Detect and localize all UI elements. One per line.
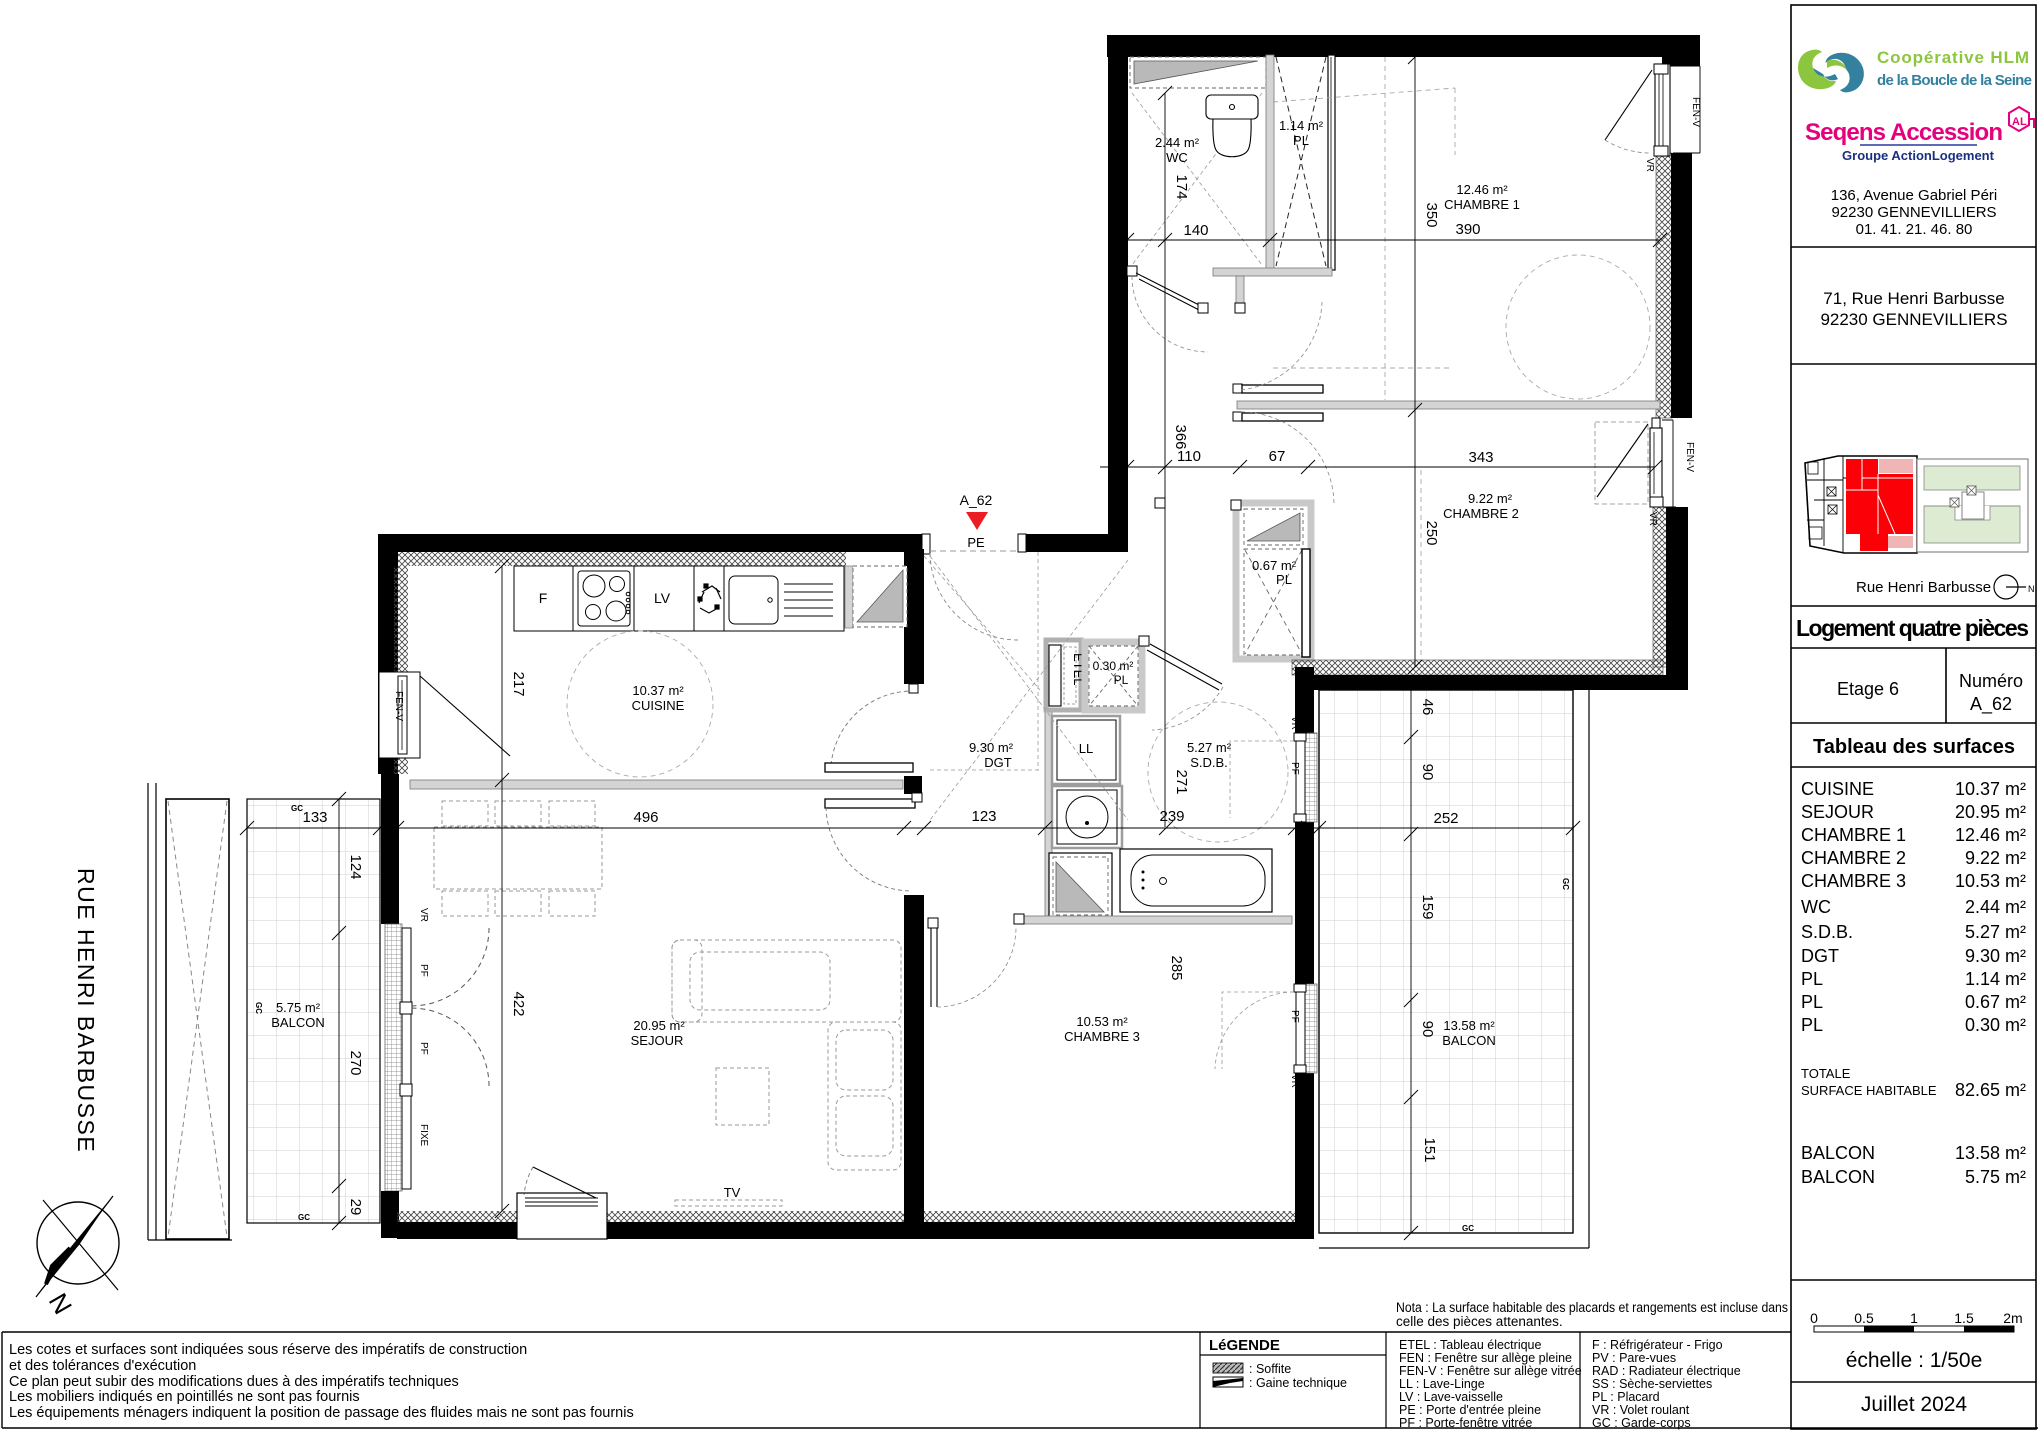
svg-text:FIXE: FIXE — [418, 1124, 429, 1147]
svg-text:12.46 m²: 12.46 m² — [1955, 825, 2026, 845]
svg-text:366: 366 — [1172, 424, 1189, 449]
svg-text:20.95 m²: 20.95 m² — [1955, 802, 2026, 822]
svg-text:0.30 m²: 0.30 m² — [1965, 1015, 2026, 1035]
svg-text:239: 239 — [1159, 808, 1184, 825]
svg-text:VR : Volet roulant: VR : Volet roulant — [1592, 1403, 1690, 1417]
svg-text:92230 GENNEVILLIERS: 92230 GENNEVILLIERS — [1820, 310, 2007, 329]
svg-text:0.67 m²: 0.67 m² — [1965, 992, 2026, 1012]
svg-text:WC: WC — [1801, 897, 1831, 917]
svg-text:FEN : Fenêtre sur allège plein: FEN : Fenêtre sur allège pleine — [1399, 1351, 1572, 1365]
svg-text:PF: PF — [418, 964, 429, 977]
svg-text:9.30 m²: 9.30 m² — [969, 740, 1014, 755]
svg-text:110: 110 — [1177, 448, 1201, 465]
svg-text:TV: TV — [724, 1185, 741, 1200]
svg-text:RAD : Radiateur électrique: RAD : Radiateur électrique — [1592, 1364, 1741, 1378]
svg-text:F : Réfrigérateur - Frigo: F : Réfrigérateur - Frigo — [1592, 1338, 1723, 1352]
svg-text:: Gaine technique: : Gaine technique — [1249, 1376, 1347, 1390]
svg-text:29: 29 — [347, 1199, 364, 1216]
svg-text:9.22 m²: 9.22 m² — [1965, 848, 2026, 868]
svg-text:VR: VR — [1647, 512, 1658, 526]
svg-text:92230 GENNEVILLIERS: 92230 GENNEVILLIERS — [1831, 204, 1996, 221]
svg-text:PV : Pare-vues: PV : Pare-vues — [1592, 1351, 1676, 1365]
svg-text:PF : Porte-fenêtre vitrée: PF : Porte-fenêtre vitrée — [1399, 1416, 1532, 1430]
svg-text:RUE HENRI BARBUSSE: RUE HENRI BARBUSSE — [73, 868, 99, 1153]
svg-text:123: 123 — [971, 808, 996, 825]
svg-text:S.D.B.: S.D.B. — [1190, 755, 1228, 770]
svg-text:124: 124 — [347, 854, 364, 879]
svg-text:Groupe ActionLogement: Groupe ActionLogement — [1842, 148, 1995, 163]
svg-text:BALCON: BALCON — [271, 1015, 324, 1030]
svg-text:WC: WC — [1166, 150, 1188, 165]
svg-text:SS : Sèche-serviettes: SS : Sèche-serviettes — [1592, 1377, 1712, 1391]
svg-text:67: 67 — [1269, 448, 1286, 465]
svg-text:Etage 6: Etage 6 — [1837, 679, 1899, 699]
svg-text:133: 133 — [302, 809, 327, 826]
svg-text:SEJOUR: SEJOUR — [1801, 802, 1874, 822]
svg-text:270: 270 — [347, 1050, 364, 1075]
svg-text:N: N — [43, 1288, 78, 1319]
svg-text:LV : Lave-vaisselle: LV : Lave-vaisselle — [1399, 1390, 1503, 1404]
svg-text:0: 0 — [1810, 1310, 1818, 1326]
svg-text:A_62: A_62 — [1970, 694, 2012, 715]
svg-text:AL: AL — [2012, 116, 2027, 128]
svg-text:01. 41. 21. 46. 80: 01. 41. 21. 46. 80 — [1856, 221, 1973, 238]
svg-text:FEN-V: FEN-V — [393, 691, 404, 721]
svg-text:GC: GC — [291, 804, 303, 813]
svg-text:Logement quatre pièces: Logement quatre pièces — [1796, 615, 2029, 641]
svg-text:CHAMBRE 2: CHAMBRE 2 — [1443, 506, 1519, 521]
svg-text:Les cotes et surfaces sont ind: Les cotes et surfaces sont indiquées sou… — [9, 1342, 527, 1358]
svg-text:10.37 m²: 10.37 m² — [1955, 779, 2026, 799]
svg-text:1.14 m²: 1.14 m² — [1279, 118, 1324, 133]
svg-text:CHAMBRE 1: CHAMBRE 1 — [1801, 825, 1906, 845]
svg-text:PL: PL — [1801, 992, 1823, 1012]
svg-text:Tableau des surfaces: Tableau des surfaces — [1813, 736, 2015, 758]
svg-text:Coopérative HLM: Coopérative HLM — [1877, 48, 2029, 67]
svg-text:DGT: DGT — [984, 755, 1012, 770]
svg-text:LéGENDE: LéGENDE — [1209, 1337, 1280, 1354]
svg-text:PL: PL — [1276, 572, 1292, 587]
svg-text:DGT: DGT — [1801, 946, 1839, 966]
svg-text:VR: VR — [418, 908, 429, 922]
svg-text:PL: PL — [1293, 133, 1309, 148]
svg-text:2m: 2m — [2003, 1310, 2022, 1326]
svg-text:252: 252 — [1433, 810, 1458, 827]
svg-text:151: 151 — [1421, 1137, 1438, 1162]
svg-text:Ce plan peut subir des modific: Ce plan peut subir des modifications due… — [9, 1374, 459, 1390]
svg-text:CHAMBRE 1: CHAMBRE 1 — [1444, 197, 1520, 212]
svg-text:TOTALE: TOTALE — [1801, 1066, 1851, 1081]
svg-text:BALCON: BALCON — [1801, 1167, 1875, 1187]
svg-text:0.67 m²: 0.67 m² — [1252, 558, 1297, 573]
svg-text:10.37 m²: 10.37 m² — [632, 683, 684, 698]
svg-text:140: 140 — [1183, 222, 1208, 239]
svg-text:46: 46 — [1419, 699, 1436, 716]
svg-text:PE : Porte d'entrée pleine: PE : Porte d'entrée pleine — [1399, 1403, 1541, 1417]
svg-text:9.22 m²: 9.22 m² — [1468, 491, 1513, 506]
svg-text:BALCON: BALCON — [1442, 1033, 1495, 1048]
svg-text:285: 285 — [1168, 955, 1185, 980]
svg-text:217: 217 — [510, 671, 527, 696]
svg-text:PF: PF — [1289, 1010, 1300, 1023]
svg-text:FEN-V: FEN-V — [1684, 442, 1695, 472]
svg-text:Rue Henri Barbusse: Rue Henri Barbusse — [1856, 579, 1991, 596]
svg-text:GC: GC — [1462, 1224, 1474, 1233]
svg-text:PL : Placard: PL : Placard — [1592, 1390, 1660, 1404]
svg-text:GC: GC — [298, 1213, 310, 1222]
svg-text:90: 90 — [1419, 1021, 1436, 1038]
svg-text:de la Boucle de la Seine: de la Boucle de la Seine — [1877, 72, 2032, 89]
svg-text:VR: VR — [1644, 158, 1655, 172]
svg-text:CUISINE: CUISINE — [632, 698, 685, 713]
svg-text:et des tolérances d'exécution: et des tolérances d'exécution — [9, 1358, 196, 1374]
svg-text:PF: PF — [418, 1042, 429, 1055]
svg-text:SURFACE HABITABLE: SURFACE HABITABLE — [1801, 1083, 1937, 1098]
svg-text:5.27 m²: 5.27 m² — [1187, 740, 1232, 755]
svg-text:GC : Garde-corps: GC : Garde-corps — [1592, 1416, 1691, 1430]
svg-text:271: 271 — [1173, 769, 1190, 794]
svg-text:159: 159 — [1419, 894, 1436, 919]
svg-text:S.D.B.: S.D.B. — [1801, 922, 1853, 942]
svg-text:A_62: A_62 — [960, 492, 993, 508]
svg-text:ETEL : Tableau électrique: ETEL : Tableau électrique — [1399, 1338, 1541, 1352]
svg-text:Seqens Accession: Seqens Accession — [1805, 119, 2003, 146]
svg-text:Nota : La surface habitable de: Nota : La surface habitable des placards… — [1396, 1300, 1788, 1315]
svg-text:5.75 m²: 5.75 m² — [1965, 1167, 2026, 1187]
svg-text:20.95 m²: 20.95 m² — [633, 1018, 685, 1033]
svg-text:13.58 m²: 13.58 m² — [1955, 1143, 2026, 1163]
svg-text:82.65 m²: 82.65 m² — [1955, 1080, 2026, 1100]
svg-text:PE: PE — [967, 535, 985, 550]
svg-text:VR: VR — [1289, 1074, 1300, 1088]
svg-text:12.46 m²: 12.46 m² — [1456, 182, 1508, 197]
svg-text:1: 1 — [1910, 1310, 1918, 1326]
svg-text:Juillet 2024: Juillet 2024 — [1861, 1393, 1968, 1416]
svg-text:FEN-V : Fenêtre sur allège vit: FEN-V : Fenêtre sur allège vitrée — [1399, 1364, 1582, 1378]
svg-text:1.5: 1.5 — [1954, 1310, 1974, 1326]
svg-text:1.14 m²: 1.14 m² — [1965, 969, 2026, 989]
svg-text:390: 390 — [1455, 221, 1480, 238]
svg-text:13.58 m²: 13.58 m² — [1443, 1018, 1495, 1033]
svg-text:PL: PL — [1114, 673, 1129, 687]
svg-text:celle des pièces attenantes.: celle des pièces attenantes. — [1396, 1314, 1563, 1329]
svg-text:PL: PL — [1801, 1015, 1823, 1035]
svg-text:BALCON: BALCON — [1801, 1143, 1875, 1163]
svg-text:LL : Lave-Linge: LL : Lave-Linge — [1399, 1377, 1485, 1391]
svg-text:échelle : 1/50e: échelle : 1/50e — [1846, 1349, 1983, 1372]
svg-text:GC: GC — [1561, 878, 1570, 890]
svg-text:CHAMBRE 2: CHAMBRE 2 — [1801, 848, 1906, 868]
svg-text:0.5: 0.5 — [1854, 1310, 1874, 1326]
svg-text:0.30 m²: 0.30 m² — [1093, 659, 1134, 673]
svg-text:250: 250 — [1423, 520, 1440, 545]
svg-text:2.44 m²: 2.44 m² — [1155, 135, 1200, 150]
svg-text:9.30 m²: 9.30 m² — [1965, 946, 2026, 966]
svg-text:PF: PF — [1289, 762, 1300, 775]
svg-text:Les équipements ménagers indiq: Les équipements ménagers indiquent la po… — [9, 1405, 634, 1421]
svg-text:CUISINE: CUISINE — [1801, 779, 1874, 799]
svg-text:N: N — [2028, 584, 2035, 594]
svg-text:: Soffite: : Soffite — [1249, 1362, 1291, 1376]
svg-text:CHAMBRE 3: CHAMBRE 3 — [1064, 1029, 1140, 1044]
svg-text:496: 496 — [633, 809, 658, 826]
svg-text:174: 174 — [1173, 174, 1190, 199]
svg-text:FEN-V: FEN-V — [1690, 97, 1701, 127]
svg-text:SEJOUR: SEJOUR — [631, 1033, 684, 1048]
svg-text:90: 90 — [1419, 764, 1436, 781]
svg-text:5.75 m²: 5.75 m² — [276, 1000, 321, 1015]
svg-text:F: F — [539, 590, 548, 606]
svg-text:5.27 m²: 5.27 m² — [1965, 922, 2026, 942]
svg-text:2.44 m²: 2.44 m² — [1965, 897, 2026, 917]
svg-text:10.53 m²: 10.53 m² — [1076, 1014, 1128, 1029]
svg-text:Numéro: Numéro — [1959, 671, 2023, 691]
svg-text:422: 422 — [510, 991, 527, 1016]
svg-text:10.53 m²: 10.53 m² — [1955, 871, 2026, 891]
svg-text:PL: PL — [1801, 969, 1823, 989]
svg-text:LV: LV — [654, 590, 671, 606]
svg-text:Les mobiliers indiqués en poin: Les mobiliers indiqués en pointillés ne … — [9, 1389, 360, 1405]
svg-text:CHAMBRE 3: CHAMBRE 3 — [1801, 871, 1906, 891]
svg-text:71, Rue Henri Barbusse: 71, Rue Henri Barbusse — [1823, 289, 2004, 308]
svg-text:LL: LL — [1079, 741, 1093, 756]
svg-text:VR: VR — [1289, 716, 1300, 730]
svg-text:350: 350 — [1423, 202, 1440, 227]
svg-text:343: 343 — [1468, 449, 1493, 466]
svg-text:GC: GC — [254, 1002, 263, 1014]
svg-text:136, Avenue Gabriel Péri: 136, Avenue Gabriel Péri — [1831, 187, 1998, 204]
